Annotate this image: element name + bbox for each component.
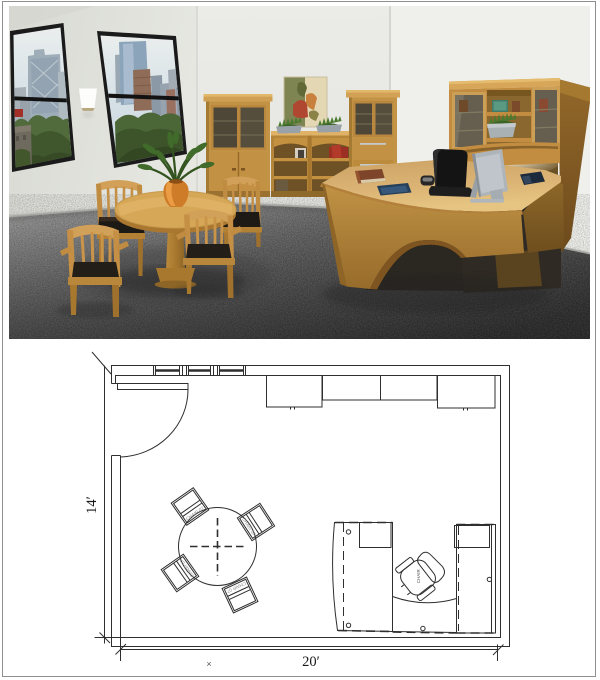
svg-text:CHAIR: CHAIR — [416, 568, 421, 583]
svg-text:20′: 20′ — [302, 654, 320, 670]
svg-text:×: × — [206, 659, 211, 669]
svg-text:14′: 14′ — [84, 496, 100, 514]
